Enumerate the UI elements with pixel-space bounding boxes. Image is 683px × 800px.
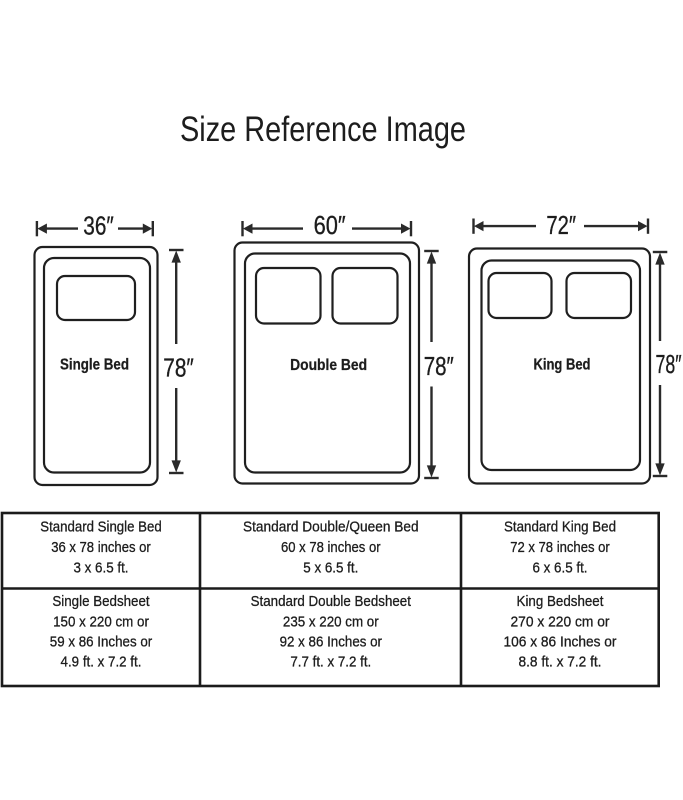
svg-text:Single Bed: Single Bed <box>60 357 129 374</box>
svg-text:4.9 ft. x 7.2 ft.: 4.9 ft. x 7.2 ft. <box>61 654 142 671</box>
svg-text:King Bedsheet: King Bedsheet <box>517 593 605 610</box>
svg-text:78″: 78″ <box>424 351 454 381</box>
svg-text:72 x 78 inches or: 72 x 78 inches or <box>510 539 610 556</box>
svg-text:Standard King Bed: Standard King Bed <box>504 519 616 536</box>
svg-text:36″: 36″ <box>83 211 114 241</box>
svg-text:78″: 78″ <box>656 349 682 379</box>
svg-text:Double Bed: Double Bed <box>290 357 367 374</box>
svg-text:8.8 ft. x 7.2 ft.: 8.8 ft. x 7.2 ft. <box>519 654 602 671</box>
svg-text:270 x 220 cm or: 270 x 220 cm or <box>511 614 610 631</box>
svg-text:King Bed: King Bed <box>534 357 591 374</box>
svg-text:60″: 60″ <box>314 210 346 240</box>
svg-text:7.7 ft. x 7.2 ft.: 7.7 ft. x 7.2 ft. <box>290 654 371 671</box>
svg-text:Standard Double Bedsheet: Standard Double Bedsheet <box>251 593 412 610</box>
svg-text:3 x 6.5 ft.: 3 x 6.5 ft. <box>74 560 129 577</box>
svg-text:72″: 72″ <box>546 210 576 240</box>
svg-text:6 x 6.5 ft.: 6 x 6.5 ft. <box>533 560 588 577</box>
svg-text:59 x 86 Inches or: 59 x 86 Inches or <box>50 634 152 651</box>
svg-text:150 x 220 cm or: 150 x 220 cm or <box>53 614 149 631</box>
svg-text:92 x 86 Inches or: 92 x 86 Inches or <box>280 634 382 651</box>
svg-text:106 x 86 Inches or: 106 x 86 Inches or <box>504 634 617 651</box>
svg-text:Single Bedsheet: Single Bedsheet <box>52 593 150 610</box>
svg-text:78″: 78″ <box>163 353 194 383</box>
svg-text:235 x 220 cm or: 235 x 220 cm or <box>283 614 379 631</box>
svg-text:5 x 6.5 ft.: 5 x 6.5 ft. <box>303 560 358 577</box>
svg-text:Size Reference Image: Size Reference Image <box>180 110 466 149</box>
svg-text:Standard Double/Queen Bed: Standard Double/Queen Bed <box>243 519 419 536</box>
svg-text:36 x 78 inches or: 36 x 78 inches or <box>51 539 151 556</box>
svg-text:60 x 78 inches or: 60 x 78 inches or <box>281 539 381 556</box>
svg-text:Standard Single Bed: Standard Single Bed <box>40 519 161 536</box>
